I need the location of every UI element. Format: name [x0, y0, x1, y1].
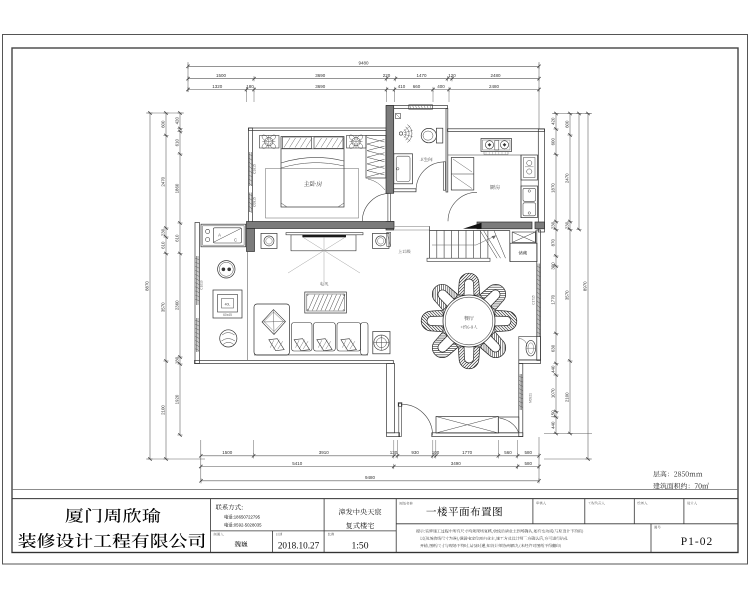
svg-text:9480: 9480 [365, 475, 376, 480]
svg-text:1070: 1070 [550, 388, 555, 398]
svg-text:2470: 2470 [564, 173, 569, 183]
svg-text:440: 440 [550, 365, 555, 373]
svg-text:300: 300 [550, 262, 555, 270]
svg-text:1870: 1870 [550, 183, 555, 193]
svg-text:3690: 3690 [315, 73, 326, 78]
svg-text:A: A [218, 233, 221, 238]
svg-text:3570: 3570 [564, 290, 569, 300]
svg-text:870: 870 [550, 239, 555, 247]
svg-text:610: 610 [174, 234, 179, 242]
svg-text:1770: 1770 [462, 450, 473, 455]
svg-text:930: 930 [411, 450, 419, 455]
svg-text:400: 400 [437, 84, 445, 89]
svg-text:3570: 3570 [160, 302, 165, 312]
svg-text:3910: 3910 [319, 450, 330, 455]
svg-text:1320: 1320 [212, 84, 223, 89]
svg-text:230: 230 [550, 221, 555, 229]
svg-text:610: 610 [160, 241, 165, 249]
svg-text:600: 600 [564, 120, 569, 128]
svg-text:600: 600 [160, 120, 165, 128]
svg-text:2018.10.27: 2018.10.27 [278, 541, 320, 551]
svg-text:2480: 2480 [489, 84, 500, 89]
svg-text:2360: 2360 [174, 300, 179, 310]
svg-text:P1-02: P1-02 [681, 536, 713, 548]
svg-text:230: 230 [564, 221, 569, 229]
svg-text:1770: 1770 [550, 294, 555, 304]
svg-text:220: 220 [383, 73, 391, 78]
svg-text:1860: 1860 [174, 183, 179, 193]
svg-text:1500: 1500 [222, 450, 233, 455]
svg-text:660: 660 [413, 84, 421, 89]
svg-text:C1815: C1815 [253, 164, 257, 174]
svg-text:1470: 1470 [416, 73, 427, 78]
svg-text:C: C [234, 238, 237, 243]
svg-text:120: 120 [448, 73, 456, 78]
svg-text:230: 230 [160, 228, 165, 236]
svg-text:8970: 8970 [582, 281, 587, 291]
svg-text:580: 580 [525, 461, 533, 466]
svg-text:2100: 2100 [160, 405, 165, 415]
svg-text:5410: 5410 [292, 461, 303, 466]
svg-text:M0921: M0921 [529, 393, 533, 403]
svg-text:420: 420 [550, 117, 555, 125]
svg-text:8870: 8870 [144, 281, 149, 291]
svg-text:2100: 2100 [564, 392, 569, 402]
svg-text:2470: 2470 [160, 176, 165, 186]
svg-text:630: 630 [550, 344, 555, 352]
svg-text:1920: 1920 [174, 394, 179, 404]
svg-text:40L: 40L [225, 303, 231, 307]
svg-text:3690: 3690 [315, 84, 326, 89]
svg-text:1:50: 1:50 [351, 541, 368, 552]
svg-text:电话:18650722795: 电话:18650722795 [224, 514, 261, 521]
svg-text:C0915: C0915 [253, 197, 257, 207]
svg-text:150: 150 [550, 410, 555, 418]
svg-text:600: 600 [550, 138, 555, 146]
svg-text:3490: 3490 [451, 461, 462, 466]
svg-text:1500: 1500 [216, 73, 227, 78]
svg-text:580: 580 [525, 450, 533, 455]
svg-text:60x45: 60x45 [223, 313, 232, 317]
svg-text:560: 560 [504, 450, 512, 455]
svg-text:C1019: C1019 [200, 280, 204, 290]
svg-text:9480: 9480 [358, 61, 369, 66]
svg-text:410: 410 [398, 84, 406, 89]
svg-text:610: 610 [174, 139, 179, 147]
svg-text:C1715: C1715 [532, 295, 536, 305]
svg-text:440: 440 [550, 421, 555, 429]
svg-text:180: 180 [174, 356, 179, 364]
svg-text:180: 180 [246, 84, 254, 89]
svg-text:420: 420 [174, 117, 179, 125]
svg-text:电话:0592-5028035: 电话:0592-5028035 [224, 522, 262, 529]
svg-text:2480: 2480 [490, 73, 501, 78]
